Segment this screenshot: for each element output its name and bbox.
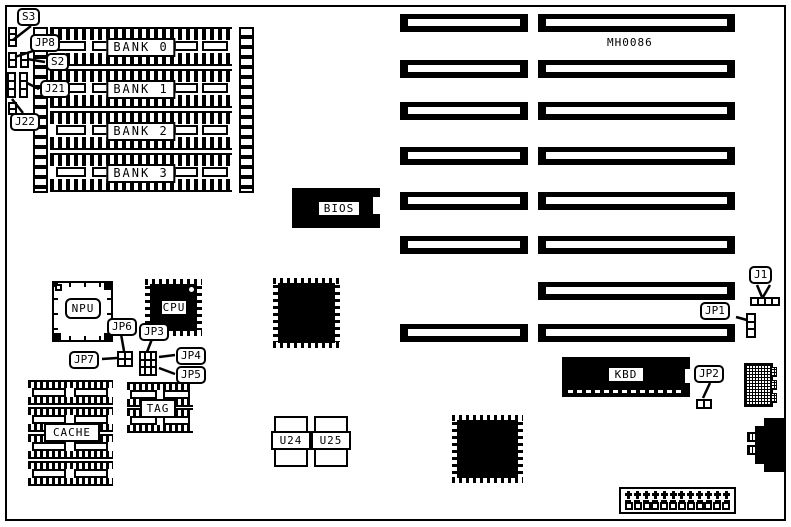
isa-slot-right-2: [538, 60, 735, 78]
simm-bank-1: BANK 1: [50, 69, 232, 109]
s2-callout: S2: [46, 53, 69, 71]
cache-chip-row: [28, 380, 113, 405]
jp1-jumper-block: [746, 313, 756, 338]
simm-bank-2: BANK 2: [50, 111, 232, 151]
j21-jumper-block-b: [19, 72, 28, 98]
power-socket: [634, 502, 642, 510]
cpu-label: CPU: [160, 299, 188, 316]
jp2-callout: JP2: [694, 365, 724, 383]
power-socket: [696, 502, 704, 510]
isa-slot-right-8: [538, 324, 735, 342]
jp3-jp4-jp5-jumper-block: [139, 351, 157, 376]
isa-slot-right-7: [538, 282, 735, 300]
power-pin: [723, 491, 730, 499]
power-pin: [670, 491, 677, 499]
corner-mark: [104, 282, 112, 290]
power-socket: [678, 502, 686, 510]
power-socket: [687, 502, 695, 510]
power-pin: [634, 491, 641, 499]
isa-slot-right-5: [538, 192, 735, 210]
power-socket: [704, 502, 712, 510]
power-pin: [661, 491, 668, 499]
isa-slot-left-1: [400, 14, 528, 32]
jp2-jumper-block: [696, 399, 712, 409]
jp1-callout: JP1: [700, 302, 730, 320]
pin1-mark: [55, 284, 62, 291]
power-connector: [619, 487, 736, 514]
isa-slot-right-3: [538, 102, 735, 120]
power-socket: [651, 502, 659, 510]
jp8-jumper-block: [8, 52, 17, 68]
j21-callout: J21: [40, 80, 70, 98]
bios-notch: [373, 197, 380, 214]
s3-callout: S3: [17, 8, 40, 26]
jp6-callout: JP6: [107, 318, 137, 336]
simm-bank-0: BANK 0: [50, 27, 232, 67]
pin1-dot: [189, 287, 194, 292]
kbd-notch: [685, 369, 690, 383]
power-socket: [625, 502, 633, 510]
keyboard-din-connector-body: [755, 426, 769, 464]
power-socket: [643, 502, 651, 510]
j22-callout: J22: [10, 113, 40, 131]
power-socket: [713, 502, 721, 510]
hatched-connector: [744, 363, 773, 407]
u25-label: U25: [311, 431, 351, 450]
din-pin-box: [747, 445, 757, 455]
npu-label: NPU: [65, 298, 101, 319]
bank-label: BANK 3: [106, 164, 175, 183]
kbd-label: KBD: [607, 366, 645, 383]
isa-slot-right-1: [538, 14, 735, 32]
power-pin: [652, 491, 659, 499]
jp7-callout: JP7: [69, 351, 99, 369]
power-pin: [696, 491, 703, 499]
simm-socket-right-end: [239, 27, 254, 193]
jp5-callout: JP5: [176, 366, 206, 384]
isa-slot-right-4: [538, 147, 735, 165]
cache-label: CACHE: [44, 423, 100, 442]
j1-callout: J1: [749, 266, 772, 284]
isa-slot-left-8: [400, 324, 528, 342]
u24-label: U24: [271, 431, 311, 450]
power-socket: [722, 502, 730, 510]
jp8-callout: JP8: [30, 34, 60, 52]
j21-jumper-block-a: [7, 72, 16, 98]
motherboard-diagram: BANK 0 BANK 1 BANK 2 BANK 3 S3 J: [0, 0, 791, 527]
power-pin: [643, 491, 650, 499]
board-id-label: MH0086: [607, 36, 653, 49]
tag-label: TAG: [140, 399, 176, 418]
j1-header: [750, 297, 780, 306]
isa-slot-left-2: [400, 60, 528, 78]
connector-bump: [770, 380, 777, 390]
din-pin-box: [747, 432, 757, 442]
qfp-chip: [273, 278, 340, 348]
s3-jumper-block: [8, 27, 17, 47]
power-pin-row: [625, 491, 730, 499]
bank-label: BANK 0: [106, 38, 175, 57]
simm-bank-3: BANK 3: [50, 153, 232, 193]
qfp-chip: [452, 415, 523, 483]
bank-label: BANK 1: [106, 80, 175, 99]
power-pin: [705, 491, 712, 499]
power-socket: [669, 502, 677, 510]
cache-chip-row: [28, 461, 113, 486]
power-pin: [678, 491, 685, 499]
isa-slot-left-4: [400, 147, 528, 165]
isa-slot-left-3: [400, 102, 528, 120]
corner-mark: [53, 333, 61, 341]
isa-slot-right-6: [538, 236, 735, 254]
isa-slot-left-6: [400, 236, 528, 254]
jp6-jp7-jumper-block: [117, 351, 133, 367]
bank-label: BANK 2: [106, 122, 175, 141]
power-socket-row: [625, 502, 730, 510]
power-socket: [660, 502, 668, 510]
power-pin: [687, 491, 694, 499]
power-pin: [714, 491, 721, 499]
jp4-callout: JP4: [176, 347, 206, 365]
isa-slot-left-5: [400, 192, 528, 210]
connector-bump: [770, 393, 777, 403]
connector-bump: [770, 367, 777, 377]
power-pin: [625, 491, 632, 499]
bios-label: BIOS: [317, 200, 361, 217]
jp3-callout: JP3: [139, 323, 169, 341]
s2-jumper-block: [20, 52, 29, 68]
